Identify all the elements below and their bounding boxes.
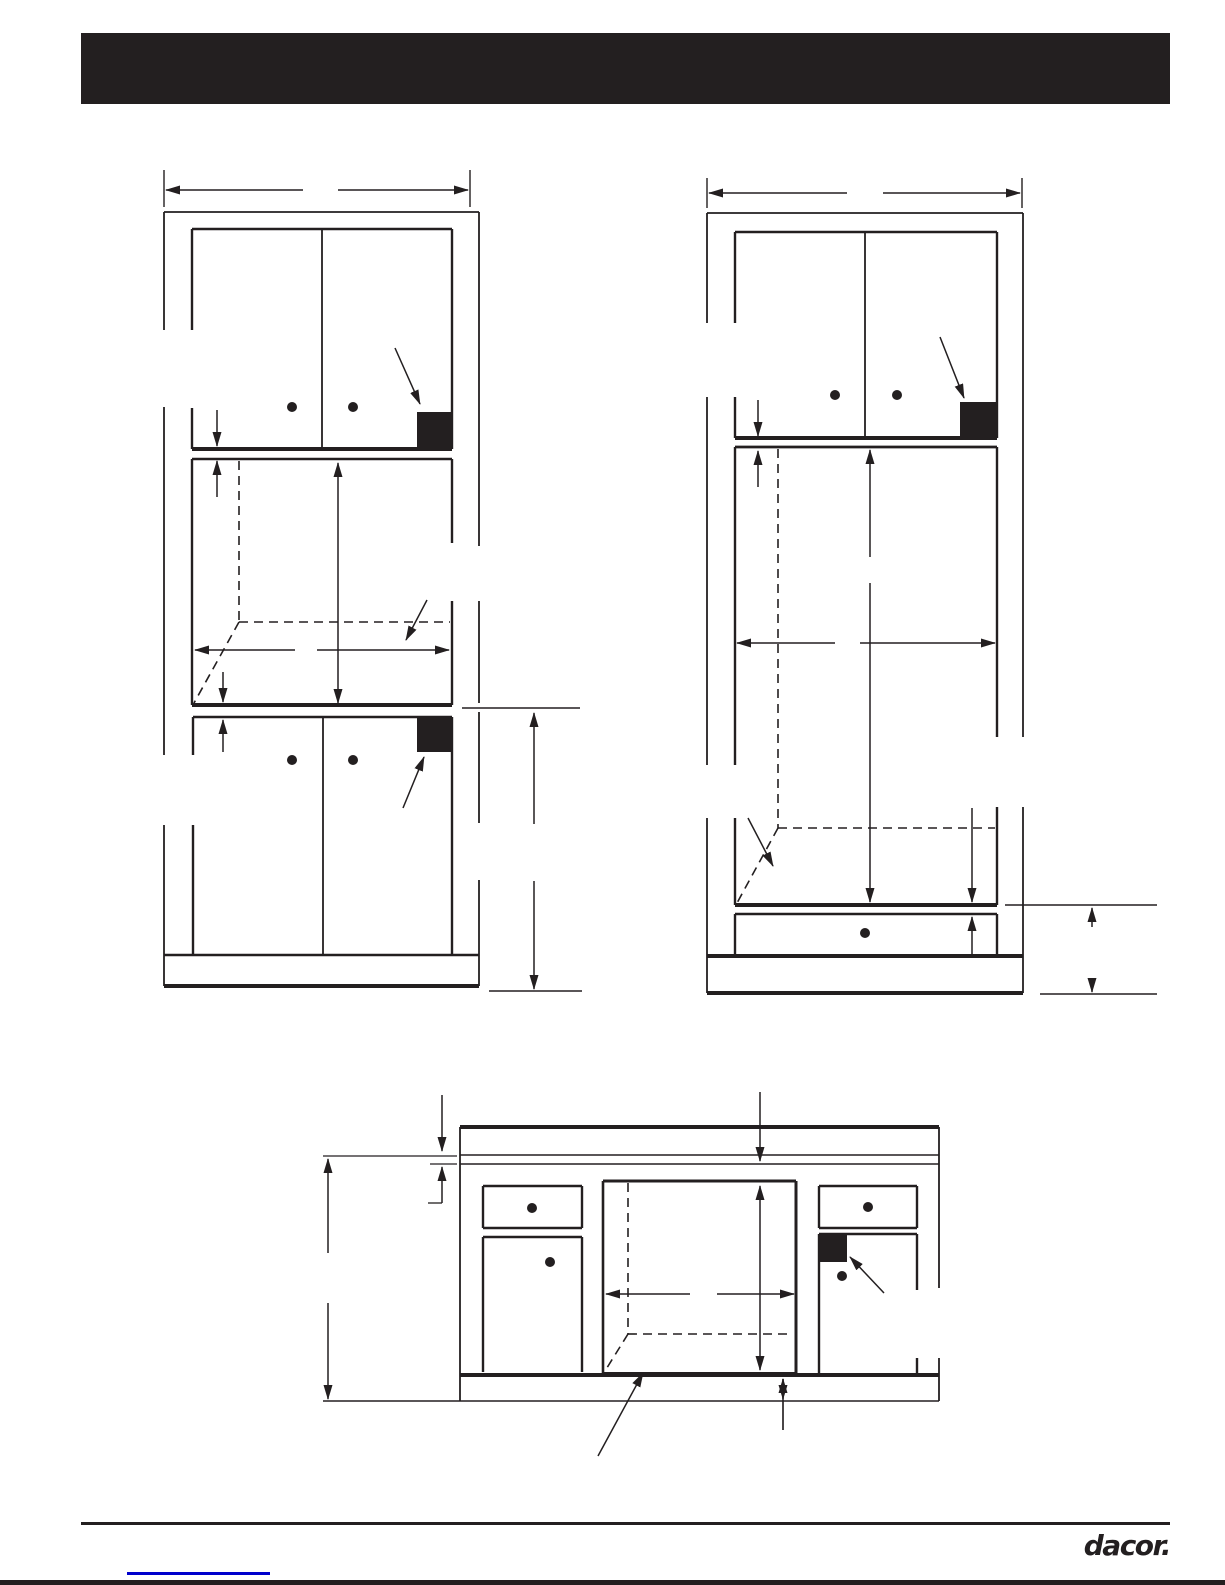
door-knob	[287, 755, 297, 765]
footer-link-underline[interactable]	[127, 1572, 270, 1575]
door-knob	[287, 402, 297, 412]
brand-logo: dacor.	[1020, 1532, 1170, 1560]
tall-cabinet-cutout-diagram-right	[707, 178, 1157, 994]
footer-divider	[81, 1522, 1170, 1525]
junction-box-marker	[820, 1234, 847, 1262]
junction-box-marker	[417, 717, 452, 752]
door-knob	[830, 390, 840, 400]
dimension-arrow	[598, 1373, 643, 1456]
door-knob	[545, 1257, 555, 1267]
door-knob	[860, 928, 870, 938]
base-cabinet-cutout-diagram-bottom	[323, 1092, 939, 1456]
cutout-dashed-line	[194, 622, 239, 703]
spec-sheet-page: dacor.	[0, 0, 1225, 1585]
diagram-canvas	[0, 0, 1225, 1585]
door-knob	[348, 402, 358, 412]
junction-box-marker	[417, 412, 452, 449]
cutout-dashed-line	[605, 1334, 628, 1371]
dimension-arrow	[850, 1257, 884, 1293]
dimension-arrow	[395, 348, 420, 404]
door-knob	[348, 755, 358, 765]
dimension-arrow	[403, 757, 424, 808]
cutout-dashed-line	[737, 828, 778, 903]
door-knob	[837, 1271, 847, 1281]
door-knob	[863, 1202, 873, 1212]
page-bottom-bar	[0, 1580, 1225, 1585]
door-knob	[527, 1203, 537, 1213]
tall-cabinet-cutout-diagram-left	[164, 170, 582, 991]
dimension-arrow	[940, 337, 964, 398]
door-knob	[892, 390, 902, 400]
junction-box-marker	[960, 402, 997, 438]
dimension-arrow	[406, 600, 427, 640]
